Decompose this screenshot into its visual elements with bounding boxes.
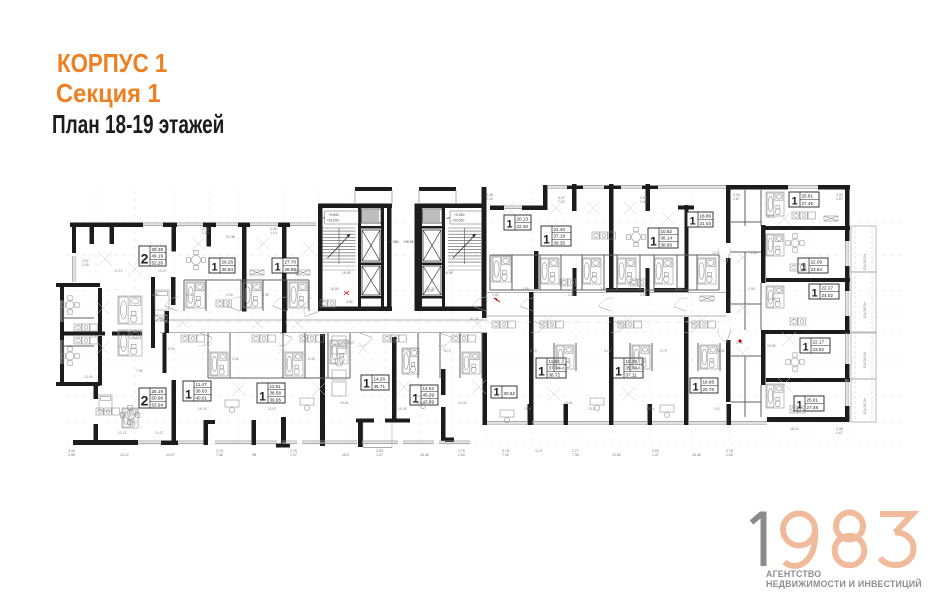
svg-text:38.72: 38.72 [549,372,561,377]
svg-text:+5.850: +5.850 [329,213,340,217]
svg-text:7.36: 7.36 [572,453,579,457]
svg-text:БАЛКОН: БАЛКОН [862,398,867,414]
svg-text:13.27: 13.27 [166,453,175,457]
svg-text:БАЛКОН: БАЛКОН [862,352,867,368]
svg-text:20.62: 20.62 [504,391,516,396]
svg-text:39.95: 39.95 [270,397,282,402]
svg-text:52.28: 52.28 [152,260,164,265]
svg-text:4.82: 4.82 [568,293,575,297]
svg-text:24.02: 24.02 [822,293,834,298]
svg-text:38.58: 38.58 [270,391,282,396]
svg-text:11.61: 11.61 [270,384,282,389]
svg-text:12.12: 12.12 [118,431,127,435]
svg-text:31.40: 31.40 [554,227,566,232]
svg-text:11.47: 11.47 [196,382,208,387]
svg-text:22.09: 22.09 [811,260,823,265]
svg-text:3.73: 3.73 [402,349,409,353]
svg-text:49.19: 49.19 [152,254,164,259]
svg-text:10.94: 10.94 [646,407,655,411]
svg-text:1: 1 [185,388,192,402]
svg-text:1: 1 [506,219,512,231]
svg-text:БАЛКОН: БАЛКОН [862,254,867,270]
svg-text:+98.98: +98.98 [403,240,414,244]
svg-text:30.64: 30.64 [222,267,234,272]
svg-text:1.47: 1.47 [376,453,383,457]
svg-text:13.27: 13.27 [158,269,167,273]
svg-text:1.60: 1.60 [726,453,733,457]
svg-text:18.13: 18.13 [790,427,799,431]
svg-text:2.24: 2.24 [486,197,493,201]
svg-text:1: 1 [615,365,622,379]
svg-text:2: 2 [141,251,149,267]
svg-text:0.22: 0.22 [604,349,611,353]
svg-text:25.81: 25.81 [802,194,814,199]
svg-text:2: 2 [141,393,149,409]
svg-text:23.92: 23.92 [813,347,825,352]
svg-text:1.60: 1.60 [458,453,465,457]
svg-text:14.26: 14.26 [374,377,386,382]
svg-text:10.28: 10.28 [398,407,407,411]
svg-text:20.76: 20.76 [703,387,715,392]
svg-text:1: 1 [689,216,695,228]
svg-text:20.42: 20.42 [458,401,467,405]
svg-text:21.63: 21.63 [700,221,712,226]
svg-text:35.71: 35.71 [374,384,386,389]
svg-text:1.87: 1.87 [836,197,843,201]
svg-text:7.90: 7.90 [502,453,509,457]
svg-text:4.00: 4.00 [152,293,159,297]
svg-text:12.12: 12.12 [114,269,123,273]
svg-text:16.46: 16.46 [420,453,429,457]
svg-text:8.27: 8.27 [348,341,355,345]
svg-text:3.45: 3.45 [186,293,193,297]
svg-text:27.45: 27.45 [802,201,814,206]
svg-text:1.37: 1.37 [290,453,297,457]
svg-text:2.98: 2.98 [82,263,89,267]
svg-text:3.98: 3.98 [640,293,647,297]
svg-text:1: 1 [811,288,817,300]
svg-text:4.82: 4.82 [492,293,499,297]
svg-text:БАЛКОН: БАЛКОН [862,302,867,318]
svg-text:50.98: 50.98 [152,396,164,401]
svg-text:37.11: 37.11 [626,372,638,377]
svg-text:7.02: 7.02 [558,200,565,204]
svg-text:+5.850: +5.850 [454,213,465,217]
svg-text:25.19: 25.19 [152,389,164,394]
svg-text:7.88: 7.88 [136,369,143,373]
svg-text:25.81: 25.81 [807,398,819,403]
svg-text:1: 1 [791,196,797,208]
svg-text:3B: 3B [252,453,257,457]
svg-text:38.63: 38.63 [196,389,208,394]
svg-text:1: 1 [650,235,657,249]
svg-text:1.38: 1.38 [202,231,209,235]
svg-text:10.84: 10.84 [612,453,621,457]
svg-text:7.38: 7.38 [216,453,223,457]
svg-text:16.46: 16.46 [692,453,701,457]
svg-text:НВ: НВ [321,216,325,220]
svg-text:37.19: 37.19 [554,234,566,239]
svg-text:1: 1 [538,365,545,379]
svg-text:0.45: 0.45 [308,357,315,361]
svg-text:+7.980: +7.980 [388,240,399,244]
svg-text:1.40: 1.40 [640,200,647,204]
svg-text:38.66: 38.66 [661,242,673,247]
svg-text:13.45: 13.45 [84,375,93,379]
svg-text:11.87: 11.87 [268,407,276,411]
svg-text:23.84: 23.84 [811,267,823,272]
svg-text:40.01: 40.01 [196,395,208,400]
svg-text:18.96: 18.96 [703,380,715,385]
svg-text:21.38: 21.38 [226,235,235,239]
svg-text:12.9: 12.9 [535,449,542,453]
svg-text:10.26: 10.26 [626,359,638,364]
svg-text:1: 1 [692,382,698,394]
svg-text:13.17: 13.17 [712,251,721,255]
svg-text:2.98: 2.98 [68,453,75,457]
svg-text:18.13: 18.13 [766,215,775,219]
svg-text:45.39: 45.39 [423,393,435,398]
svg-text:13.9: 13.9 [524,407,531,411]
svg-text:13.27: 13.27 [155,431,164,435]
svg-text:12.12: 12.12 [120,453,129,457]
svg-text:1.47: 1.47 [652,453,659,457]
svg-text:10.84: 10.84 [564,401,573,405]
svg-text:16.88: 16.88 [330,287,339,291]
svg-text:НВ: НВ [446,216,450,220]
svg-text:25.35: 25.35 [426,287,435,291]
svg-text:1.14: 1.14 [270,231,277,235]
svg-text:16.98: 16.98 [767,344,776,348]
svg-text:22.30: 22.30 [517,224,529,229]
svg-text:5.00: 5.00 [168,347,175,351]
svg-text:3.45: 3.45 [232,357,239,361]
svg-text:25.84: 25.84 [340,401,349,405]
svg-text:4.92: 4.92 [346,300,353,304]
svg-text:1: 1 [259,390,266,404]
svg-text:19.1: 19.1 [714,407,721,411]
svg-text:14.52: 14.52 [423,386,435,391]
svg-text:18.5: 18.5 [342,453,349,457]
svg-text:28.89: 28.89 [285,267,297,272]
svg-text:53.94: 53.94 [152,402,164,407]
svg-text:16.98: 16.98 [444,271,453,275]
svg-text:20.13: 20.13 [517,217,529,222]
svg-text:14.87: 14.87 [767,297,776,301]
svg-text:18.78: 18.78 [198,407,207,411]
svg-text:10.62: 10.62 [661,229,673,234]
svg-text:2.98: 2.98 [748,287,755,291]
svg-text:39.35: 39.35 [554,240,566,245]
svg-text:27.48: 27.48 [807,405,819,410]
svg-text:3.73: 3.73 [530,349,537,353]
svg-text:36.14: 36.14 [661,236,673,241]
svg-text:1: 1 [543,233,550,247]
svg-text:4.28: 4.28 [226,293,233,297]
svg-text:22.27: 22.27 [822,286,834,291]
svg-text:1.67: 1.67 [836,431,843,435]
svg-text:1: 1 [412,392,419,406]
svg-text:1: 1 [274,262,280,274]
svg-text:16.98: 16.98 [342,271,351,275]
svg-text:27.70: 27.70 [285,260,297,265]
svg-text:29.26: 29.26 [222,260,234,265]
svg-text:+53.650: +53.650 [452,219,464,223]
svg-text:1: 1 [493,387,499,399]
svg-text:1.67: 1.67 [733,197,740,201]
svg-text:4.13: 4.13 [118,345,125,349]
svg-text:+53.650: +53.650 [327,219,339,223]
svg-text:1: 1 [211,262,217,274]
svg-text:3.79: 3.79 [660,349,667,353]
svg-text:22.17: 22.17 [813,340,825,345]
svg-text:1: 1 [802,342,808,354]
svg-text:1: 1 [363,377,370,391]
svg-text:18.86: 18.86 [700,214,712,219]
svg-text:18.5: 18.5 [588,407,595,411]
